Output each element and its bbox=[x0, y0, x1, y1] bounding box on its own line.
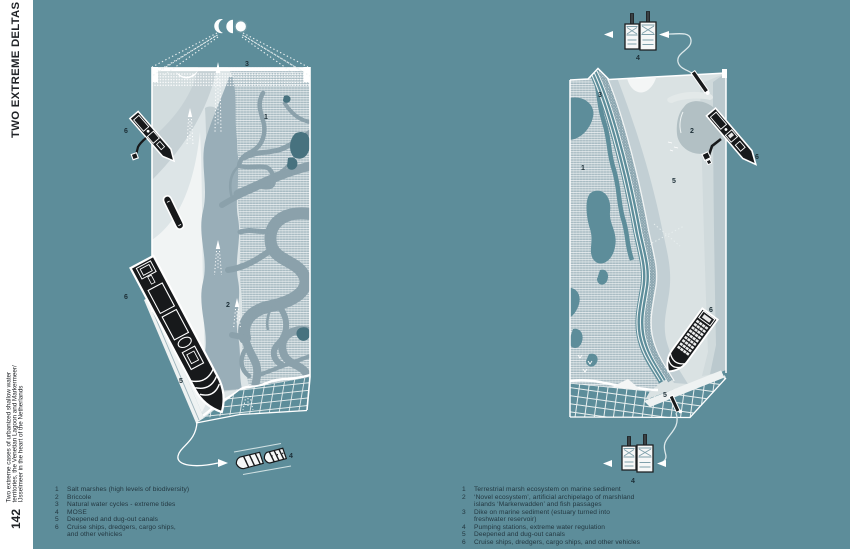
svg-text:4: 4 bbox=[289, 453, 293, 460]
svg-text:1: 1 bbox=[581, 165, 585, 172]
svg-text:5: 5 bbox=[663, 392, 667, 399]
svg-text:3: 3 bbox=[598, 92, 602, 99]
svg-text:6: 6 bbox=[709, 307, 713, 314]
svg-text:1: 1 bbox=[264, 114, 268, 121]
svg-text:5: 5 bbox=[672, 178, 676, 185]
svg-text:6: 6 bbox=[755, 154, 759, 161]
svg-text:6: 6 bbox=[124, 294, 128, 301]
svg-text:3: 3 bbox=[245, 61, 249, 68]
svg-text:6: 6 bbox=[124, 128, 128, 135]
svg-text:2: 2 bbox=[690, 128, 694, 135]
svg-text:5: 5 bbox=[179, 378, 183, 385]
svg-text:2: 2 bbox=[226, 302, 230, 309]
svg-text:4: 4 bbox=[631, 478, 635, 485]
svg-text:4: 4 bbox=[636, 55, 640, 62]
